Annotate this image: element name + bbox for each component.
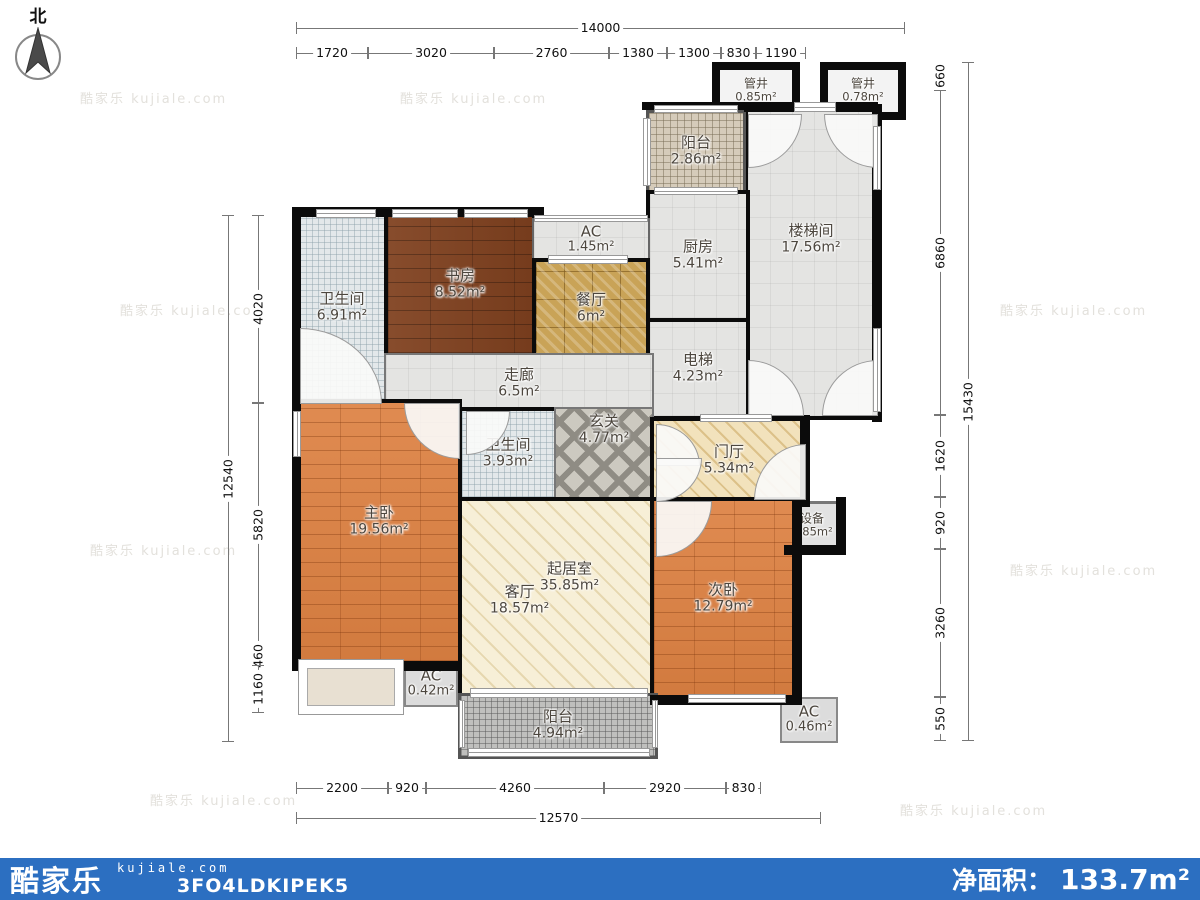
dim-label: 4260 xyxy=(496,780,534,795)
window xyxy=(873,328,881,412)
dim-label: 14000 xyxy=(578,20,624,35)
room-label: 门厅 xyxy=(714,442,744,460)
room-label: 厨房 xyxy=(683,237,713,255)
dim-label: 5820 xyxy=(251,506,266,544)
room-label: 管井 xyxy=(851,76,875,90)
room-area: 4.77m² xyxy=(579,430,629,447)
dim-label: 3020 xyxy=(412,45,450,60)
room-area: 1.45m² xyxy=(568,239,615,255)
room-label: 管井 xyxy=(744,76,768,90)
window xyxy=(459,700,465,748)
dim-label: 2200 xyxy=(323,780,361,795)
dim-top-segments: 1720 3020 2760 1380 1300 830 1190 xyxy=(296,47,806,59)
room-area: 5.34m² xyxy=(704,460,754,477)
dim-left-segments: 4020 5820 460 1160 xyxy=(252,215,264,713)
dim-label: 660 xyxy=(933,61,948,91)
window xyxy=(654,187,738,195)
room-label: 卫生间 xyxy=(319,289,364,307)
dim-label: 6860 xyxy=(933,234,948,272)
dim-right-total: 15430 xyxy=(962,62,974,741)
room-entry-hall: 玄关4.77m² xyxy=(554,407,654,505)
window xyxy=(316,209,376,218)
window xyxy=(654,105,738,113)
room-label: 楼梯间 xyxy=(788,221,833,239)
window xyxy=(534,215,648,222)
room-label: 阳台 xyxy=(681,133,711,151)
dim-label: 12570 xyxy=(536,810,582,825)
watermark: 酷家乐 kujiale.com xyxy=(900,800,1047,819)
dim-label: 2760 xyxy=(533,45,571,60)
window xyxy=(873,126,881,190)
watermark: 酷家乐 kujiale.com xyxy=(90,540,237,559)
window xyxy=(643,118,651,186)
dim-label: 920 xyxy=(933,508,948,538)
room-area: 12.79m² xyxy=(693,598,752,615)
dim-left-total: 12540 xyxy=(222,215,234,742)
room-label: 客厅 xyxy=(505,582,535,600)
room-balcony-top: 阳台2.86m² xyxy=(646,110,746,194)
room-area: 6.91m² xyxy=(317,307,367,324)
room-living: 起居室35.85m² 客厅18.57m² xyxy=(458,497,658,697)
room-area: 4.94m² xyxy=(533,725,583,742)
room-label: 阳台 xyxy=(543,707,573,725)
dim-label: 1160 xyxy=(251,670,266,708)
dim-label: 1720 xyxy=(313,45,351,60)
room-label: 起居室 xyxy=(547,559,592,577)
dim-right-segments: 660 6860 1620 920 3260 550 xyxy=(934,62,946,741)
dim-label: 550 xyxy=(933,704,948,734)
room-area: 0.46m² xyxy=(786,719,833,735)
dim-label: 920 xyxy=(392,780,422,795)
window xyxy=(652,700,658,748)
dim-label: 2920 xyxy=(646,780,684,795)
dim-bottom-segments: 2200 920 4260 2920 830 xyxy=(296,782,761,794)
window xyxy=(794,102,836,112)
watermark: 酷家乐 kujiale.com xyxy=(1010,560,1157,579)
room-label: 玄关 xyxy=(589,412,619,430)
dim-label: 1190 xyxy=(762,45,800,60)
net-area-label: 净面积： xyxy=(952,861,1052,897)
dim-label: 15430 xyxy=(961,379,976,425)
window xyxy=(468,748,650,757)
dim-label: 4020 xyxy=(251,290,266,328)
watermark: 酷家乐 kujiale.com xyxy=(1000,300,1147,319)
room-label: 电梯 xyxy=(683,350,713,368)
room-dining: 餐厅6m² xyxy=(532,258,650,360)
room-area: 6m² xyxy=(576,308,606,325)
room-area: 19.56m² xyxy=(349,521,408,538)
kujiale-url: kujiale.com xyxy=(117,861,349,875)
window xyxy=(548,255,628,264)
room-area: 2.86m² xyxy=(671,151,721,168)
watermark: 酷家乐 kujiale.com xyxy=(80,88,227,107)
dim-top-total: 14000 xyxy=(296,22,905,34)
north-arrow: 北 xyxy=(8,2,68,87)
dim-label: 1620 xyxy=(933,437,948,475)
compass-icon xyxy=(9,27,67,83)
room-kitchen: 厨房5.41m² xyxy=(646,190,750,322)
room-area: 3.93m² xyxy=(483,453,533,470)
bay-window-sill xyxy=(307,668,395,706)
room-area: 0.42m² xyxy=(408,683,455,699)
room-label: 走廊 xyxy=(504,365,534,383)
watermark: 酷家乐 kujiale.com xyxy=(400,88,547,107)
room-elevator: 电梯4.23m² xyxy=(646,318,750,420)
window xyxy=(688,694,786,703)
window xyxy=(700,414,772,422)
room-label: 主卧 xyxy=(364,503,394,521)
room-study: 书房8.52m² xyxy=(384,213,536,357)
room-area: 8.52m² xyxy=(435,284,485,301)
north-label: 北 xyxy=(8,2,68,27)
room-label: AC xyxy=(581,222,601,240)
room-area: 17.56m² xyxy=(781,239,840,256)
room-area: 4.23m² xyxy=(673,368,723,385)
footer-bar: 酷家乐 kujiale.com 3FO4LDKIPEK5 净面积： 133.7m… xyxy=(0,858,1200,900)
watermark: 酷家乐 kujiale.com xyxy=(150,790,297,809)
kujiale-logo: 酷家乐 xyxy=(10,858,103,900)
room-label: 次卧 xyxy=(708,580,738,598)
wall xyxy=(396,661,462,671)
dim-label: 3260 xyxy=(933,604,948,642)
window xyxy=(464,209,528,218)
wall xyxy=(792,497,802,705)
plan-code: 3FO4LDKIPEK5 xyxy=(177,875,349,897)
dim-label: 1300 xyxy=(675,45,713,60)
window xyxy=(392,209,458,218)
room-area: 5.41m² xyxy=(673,255,723,272)
watermark: 酷家乐 kujiale.com xyxy=(120,300,267,319)
room-label: AC xyxy=(799,702,819,720)
dim-bottom-total: 12570 xyxy=(296,812,821,824)
dim-label: 830 xyxy=(729,780,759,795)
room-area: 6.5m² xyxy=(498,383,540,400)
dim-label: 830 xyxy=(724,45,754,60)
room-area: 18.57m² xyxy=(490,600,549,617)
room-label: 设备 xyxy=(800,511,824,525)
room-label: 餐厅 xyxy=(576,290,606,308)
window xyxy=(293,411,301,457)
window-sliding-door xyxy=(470,688,648,698)
bay-window xyxy=(298,659,404,715)
dim-label: 12540 xyxy=(221,456,236,502)
net-area-value: 133.7m² xyxy=(1060,863,1190,896)
dim-label: 1380 xyxy=(619,45,657,60)
room-label: 书房 xyxy=(445,266,475,284)
